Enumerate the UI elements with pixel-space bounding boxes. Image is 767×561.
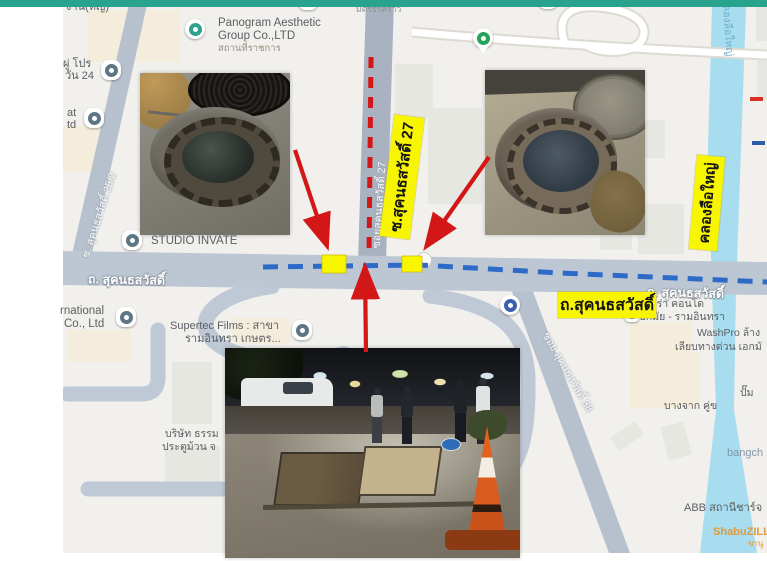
person-silhouette [400, 386, 414, 444]
place-label-at-1: at [67, 107, 76, 120]
place-label-abb: ABB สถานีชาร์จ [684, 502, 762, 515]
truck-window [283, 382, 313, 394]
place-label-supertec-1: Supertec Films : สาขา [170, 320, 279, 333]
manhole-photo-right [485, 70, 645, 235]
traffic-cone-base [445, 530, 520, 550]
place-label-pro-1: ผู่ โปร [63, 58, 91, 71]
person-silhouette [370, 388, 384, 443]
top-teal-bar [0, 0, 767, 7]
place-label-washpro-2: เลียบทางด่วน เอกมั [675, 341, 762, 353]
annotated-map-canvas: งาน(หญ่) มิตรธิรคราว Panogram Aesthetic … [0, 0, 767, 561]
person-silhouette [453, 380, 468, 442]
place-label-borisat-2: ประตูม้วน จ [162, 441, 216, 453]
map-pin-icon [122, 230, 142, 250]
manhole-marker-left [322, 255, 346, 273]
place-label-washpro-1: WashPro ล้าง [697, 327, 760, 339]
manhole-water [523, 130, 599, 192]
excavation-patch [273, 452, 367, 506]
map-pin-icon [101, 60, 121, 80]
place-label-panogram-1: Panogram Aesthetic [218, 17, 321, 30]
place-label-pump-2: บางจาก คู่ข [664, 400, 717, 412]
red-road-mark [750, 97, 763, 101]
excavation-patch [357, 446, 442, 496]
place-label-shabu-2: ขานู [748, 539, 763, 548]
left-margin [0, 7, 63, 561]
place-label-borisat-1: บริษัท ธรรม [165, 428, 219, 440]
blue-road-mark [752, 141, 765, 145]
night-street-photo [225, 348, 520, 558]
green-place-pin-icon [473, 28, 493, 48]
place-label-panogram-2: Group Co.,LTD [218, 30, 295, 43]
place-label-panogram-sub: สถานที่ราชการ [218, 44, 281, 55]
map-pin-icon [292, 320, 312, 340]
road-label-main-left: ถ. สุคนธสวัสดิ์ [88, 269, 165, 290]
place-label-rnational-1: rnational [60, 305, 104, 318]
manhole-water [182, 131, 254, 183]
place-label-at-2: td [67, 119, 76, 132]
panogram-pin-icon [185, 19, 205, 39]
place-label-studio: STUDIO INVATE [151, 235, 237, 248]
place-label-shabu-1: ShabuZILL [713, 526, 767, 539]
map-pin-icon [116, 307, 136, 327]
place-label-supertec-2: รามอินทรา เกษตร... [185, 333, 281, 346]
map-pin-icon [84, 108, 104, 128]
place-label-pro-2: วัน 24 [65, 70, 94, 83]
manhole-photo-left [140, 73, 290, 235]
place-label-bangchak: bangch [727, 447, 763, 460]
road-label-main-right: ถ. สุคนธสวัสดิ์ [647, 282, 725, 304]
place-label-pump-1: ปั๊ม [740, 387, 754, 399]
blue-ground-marker [441, 438, 461, 451]
manhole-marker-right [402, 256, 422, 272]
place-label-rnational-2: Co., Ltd [64, 318, 104, 331]
bank-pin-icon [500, 295, 520, 315]
highlight-label-road: ถ.สุคนธสวัสดิ์ [558, 292, 656, 318]
